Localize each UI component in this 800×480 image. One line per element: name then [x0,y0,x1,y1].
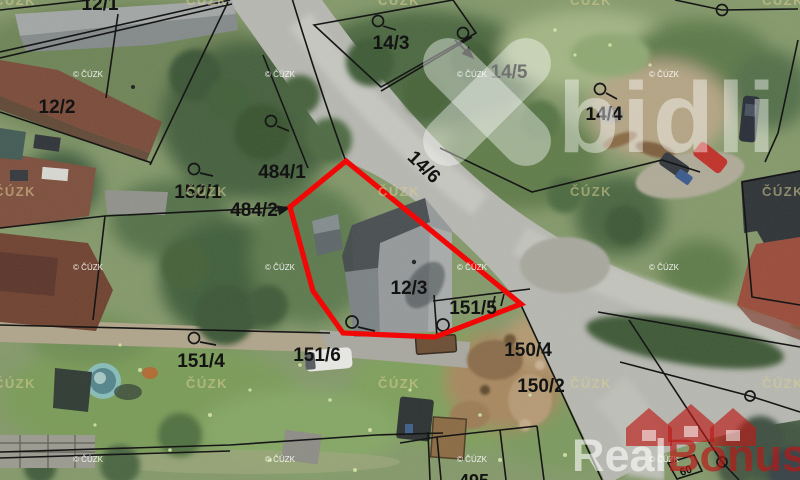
cuzk-copyright: © ČÚZK [649,263,680,272]
cuzk-copyright: © ČÚZK [457,263,488,272]
realbonus-watermark-text: RealBonuscz [572,430,800,480]
cuzk-copyright: © ČÚZK [73,70,104,79]
cuzk-watermark: ČÚZK [570,184,612,199]
cuzk-watermark: ČÚZK [186,0,228,8]
cuzk-watermark: ČÚZK [570,376,612,391]
parcel-label: 150/2 [517,376,565,397]
parcel-label: 151/6 [293,345,341,366]
cuzk-watermark: ČÚZK [186,376,228,391]
cuzk-copyright: © ČÚZK [457,455,488,464]
cuzk-copyright: © ČÚZK [265,455,296,464]
cadastral-map-view: 12/1 12/2 14/3 14/5 14/4 152/1 484/1 484… [0,0,800,480]
cuzk-copyright: © ČÚZK [265,70,296,79]
cuzk-watermark: ČÚZK [570,0,612,8]
parcel-label: 495 [459,471,489,480]
cuzk-watermark: ČÚZK [186,184,228,199]
parcel-label: 151/4 [177,351,225,372]
parcel-label: 150/4 [504,340,552,361]
map-canvas: 12/1 12/2 14/3 14/5 14/4 152/1 484/1 484… [0,0,800,480]
cuzk-watermark: ČÚZK [378,376,420,391]
cuzk-watermark: ČÚZK [762,184,800,199]
cuzk-copyright: © ČÚZK [265,263,296,272]
cuzk-watermark: ČÚZK [762,376,800,391]
parcel-label: 12/1 [82,0,119,15]
parcel-label: 484/1 [258,162,306,183]
cuzk-watermark: ČÚZK [378,0,420,8]
parcel-label: 484/2 [230,200,278,221]
cuzk-watermark: ČÚZK [0,0,36,8]
parcel-label-subject: 12/3 [391,278,428,299]
bidli-watermark-text: bidli [558,62,779,174]
cuzk-watermark: ČÚZK [762,0,800,8]
parcel-label: 12/2 [39,97,76,118]
cuzk-watermark: ČÚZK [0,184,36,199]
cuzk-copyright: © ČÚZK [73,263,104,272]
parcel-label: 14/3 [373,33,410,54]
parcel-label: 151/5 [449,298,497,319]
cuzk-watermark: ČÚZK [0,376,36,391]
cuzk-watermark: ČÚZK [378,184,420,199]
cuzk-copyright: © ČÚZK [73,455,104,464]
